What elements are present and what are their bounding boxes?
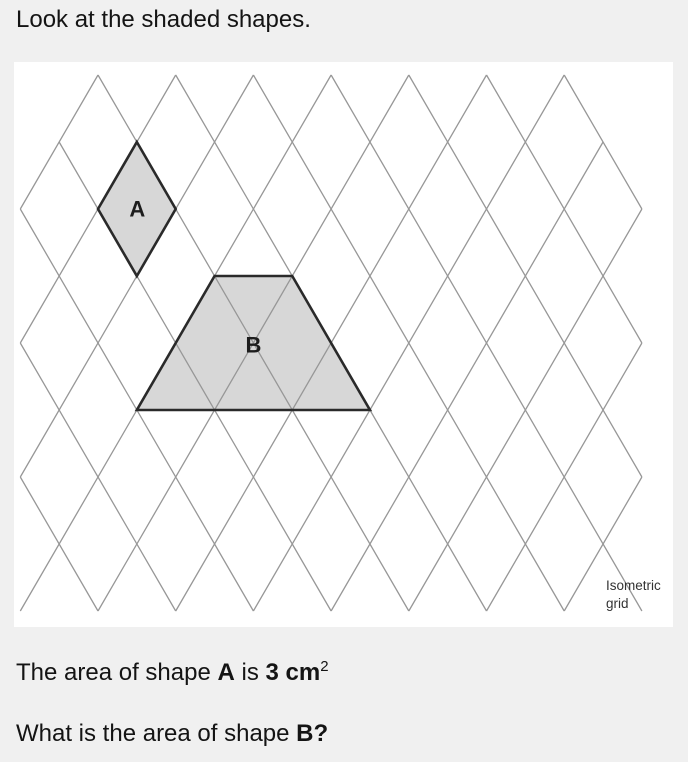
question-prefix: What is the area of shape xyxy=(16,720,296,747)
statement-mid: is xyxy=(235,659,266,686)
shape-a-reference: A xyxy=(217,659,234,686)
question-prompt: What is the area of shape B? xyxy=(16,720,328,748)
grid-line xyxy=(331,142,603,611)
area-value: 3 cm xyxy=(265,659,320,686)
grid-caption: Isometric grid xyxy=(606,577,661,613)
grid-caption-line1: Isometric xyxy=(606,577,661,595)
grid-caption-line2: grid xyxy=(606,595,661,613)
shape-a-label: A xyxy=(129,197,145,222)
isometric-grid-figure: AB xyxy=(14,62,673,627)
isometric-grid-panel: AB Isometric grid xyxy=(14,62,673,627)
shape-b-label: B xyxy=(245,333,261,358)
prompt-text: Look at the shaded shapes. xyxy=(16,6,311,35)
statement-prefix: The area of shape xyxy=(16,659,217,686)
shape-b-reference: B? xyxy=(296,720,328,747)
question-area-statement: The area of shape A is 3 cm2 xyxy=(16,659,329,687)
area-value-exponent: 2 xyxy=(320,658,328,675)
